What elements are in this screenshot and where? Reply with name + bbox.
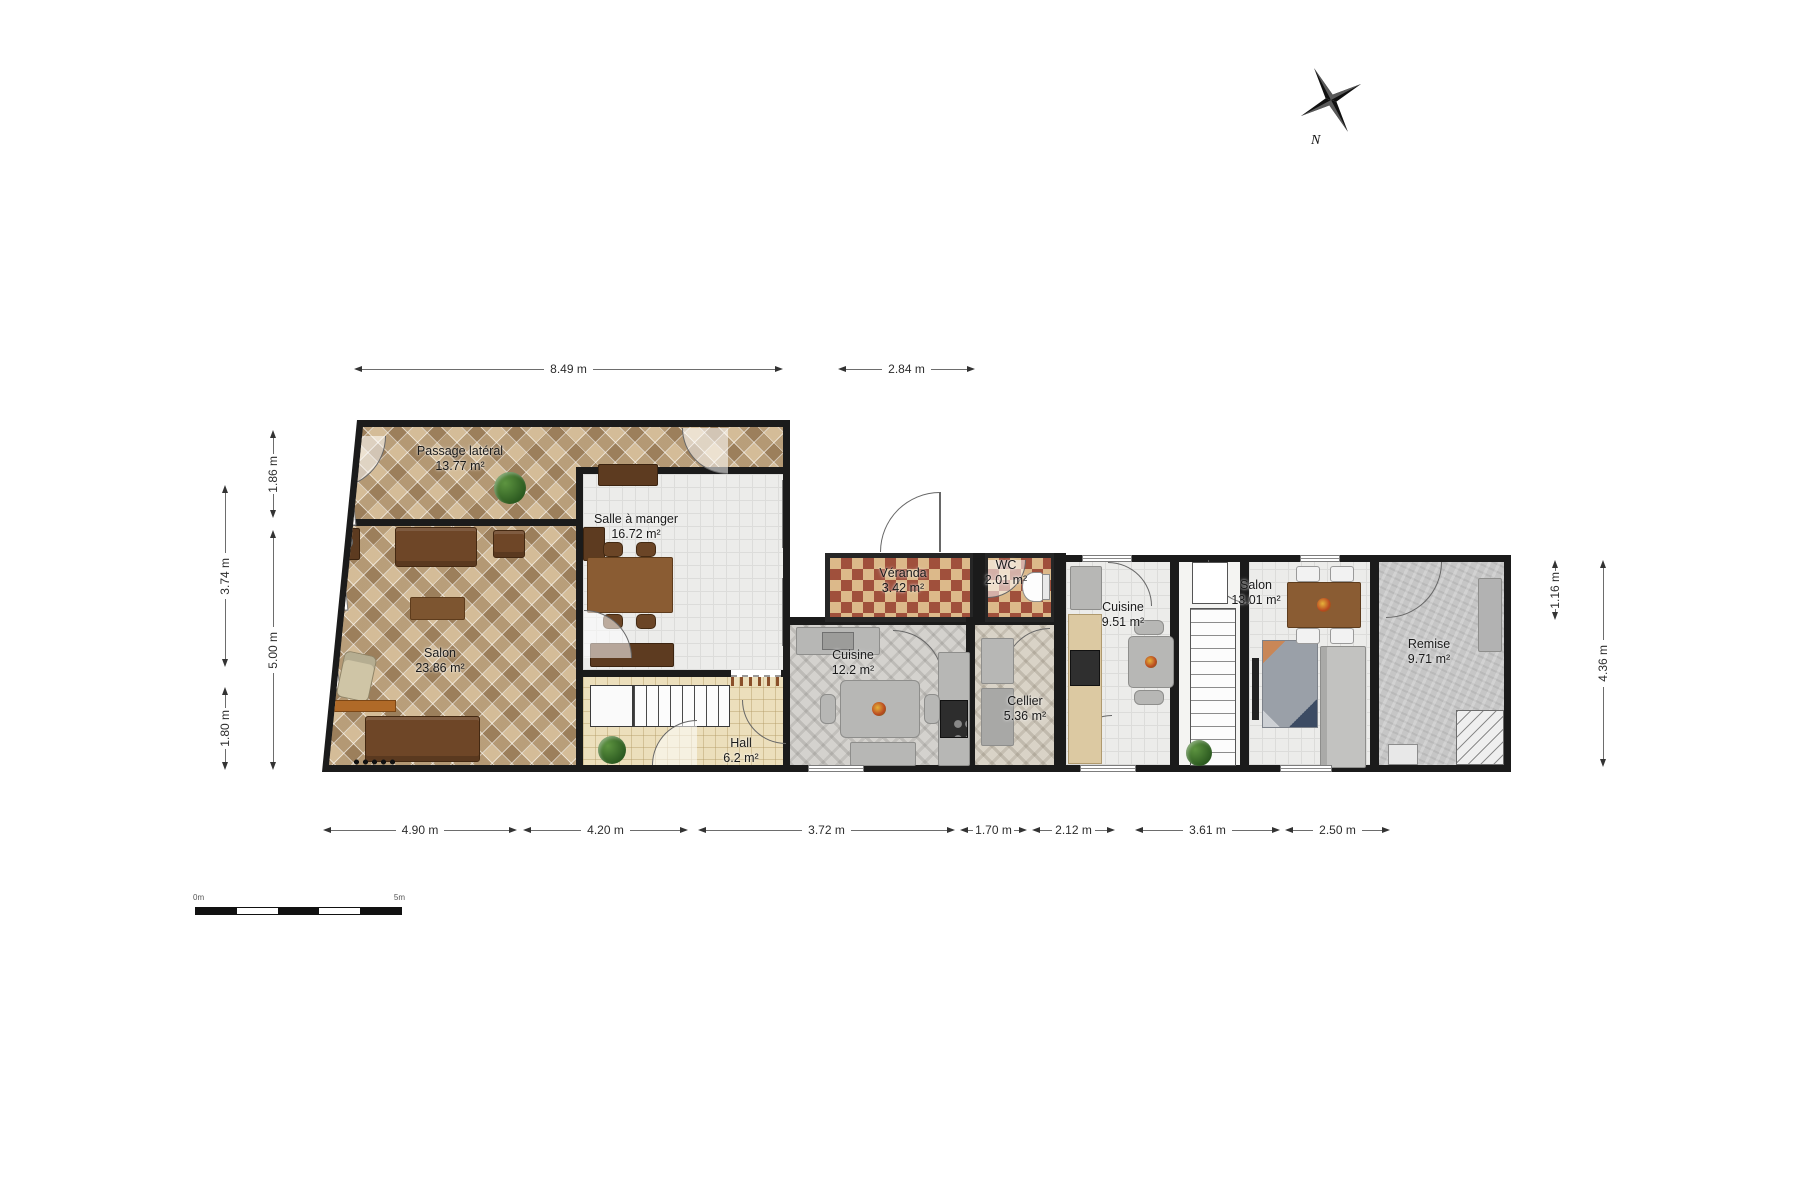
dining-chair-white	[1296, 628, 1320, 644]
window-north-salon-right	[1300, 555, 1340, 562]
wall-cellier-cuisine-right	[1054, 553, 1066, 772]
window-east-dining-2	[782, 578, 790, 646]
room-label-cuisine-left: Cuisine 12.2 m²	[793, 648, 913, 678]
room-label-cellier: Cellier 5.36 m²	[965, 694, 1085, 724]
room-area: 5.36 m²	[965, 709, 1085, 724]
plant-corridor	[1186, 740, 1212, 766]
room-area: 12.2 m²	[793, 663, 913, 678]
room-label-salon-right: Salon 13.01 m²	[1196, 578, 1316, 608]
sofa-small	[365, 716, 480, 762]
side-table	[332, 528, 360, 560]
dining-chair-white	[1330, 628, 1354, 644]
room-name: Remise	[1369, 637, 1489, 652]
door-arc-veranda	[880, 492, 940, 552]
dimension-bottom-361: 3.61 m	[1135, 824, 1280, 836]
room-label-salle-a-manger: Salle à manger 16.72 m²	[566, 512, 706, 542]
room-label-salon-left: Salon 23.86 m²	[385, 646, 495, 676]
door-leaf-veranda	[939, 492, 941, 552]
dimension-value: 1.80 m	[219, 708, 231, 749]
tv-screen	[1252, 658, 1259, 720]
stair-landing	[590, 685, 633, 727]
cellier-appliance-1	[981, 638, 1014, 684]
plant-dining	[494, 472, 526, 504]
remise-box	[1388, 744, 1418, 765]
room-name: Passage latéral	[385, 444, 535, 459]
coffee-table	[410, 597, 465, 620]
window-south-salon-2	[497, 765, 533, 772]
kitchen-chair	[820, 694, 836, 724]
wall-passage-salon	[322, 519, 583, 526]
fruit-bowl	[1317, 598, 1331, 612]
dimension-bottom-212: 2.12 m	[1032, 824, 1115, 836]
room-area: 9.51 m²	[1063, 615, 1183, 630]
room-name: Cuisine	[1063, 600, 1183, 615]
window-south-salon-1	[417, 765, 467, 772]
wall-shelf	[308, 700, 396, 712]
room-label-veranda: Véranda 3.42 m²	[845, 566, 961, 596]
sofa-gray	[1320, 646, 1366, 768]
window-west-1	[344, 478, 357, 527]
sideboard-top	[598, 464, 658, 486]
dimension-left-374: 3.74 m	[218, 485, 232, 667]
room-area: 13.01 m²	[1196, 593, 1316, 608]
scale-bar-segments	[195, 907, 402, 915]
dimension-value: 4.90 m	[396, 824, 445, 836]
oven	[1070, 650, 1100, 686]
fruit-bowl	[1145, 656, 1157, 668]
dimension-value: 3.72 m	[802, 824, 851, 836]
dimension-bottom-490: 4.90 m	[323, 824, 517, 836]
room-name: WC	[966, 558, 1046, 573]
dining-chair-white	[1330, 566, 1354, 582]
fruit-bowl	[872, 702, 886, 716]
dimension-bottom-250: 2.50 m	[1285, 824, 1390, 836]
room-area: 3.42 m²	[845, 581, 961, 596]
dimension-value: 1.16 m	[1549, 571, 1561, 610]
room-name: Cellier	[965, 694, 1085, 709]
lamp	[339, 535, 353, 549]
rug	[1262, 640, 1318, 728]
scale-bar: 0m 5m	[193, 893, 405, 919]
window-south-cuisine-right	[1080, 765, 1136, 772]
dimension-left-186: 1.86 m	[266, 430, 280, 518]
window-east-dining-1	[782, 480, 790, 548]
dimension-value: 1.86 m	[267, 454, 279, 495]
dimension-bottom-170: 1.70 m	[960, 824, 1027, 836]
dimension-top-849: 8.49 m	[354, 363, 783, 375]
dimension-left-500: 5.00 m	[266, 530, 280, 770]
dimension-right-436: 4.36 m	[1596, 560, 1610, 767]
kitchen-appliance	[850, 742, 916, 766]
room-name: Salle à manger	[566, 512, 706, 527]
dimension-value: 8.49 m	[544, 363, 593, 375]
dimension-value: 3.74 m	[219, 553, 231, 600]
dimension-top-284: 2.84 m	[838, 363, 975, 375]
armchair	[493, 530, 525, 558]
room-area: 23.86 m²	[385, 661, 495, 676]
room-label-wc: WC 2.01 m²	[966, 558, 1046, 588]
room-name: Cuisine	[793, 648, 913, 663]
room-area: 16.72 m²	[566, 527, 706, 542]
staircase-hall	[633, 685, 730, 727]
dimension-value: 4.20 m	[581, 824, 630, 836]
kitchen-chair	[1134, 690, 1164, 705]
opening-dining-hall	[731, 670, 781, 677]
scale-end-label: 5m	[394, 893, 405, 902]
dimension-right-116: 1.16 m	[1548, 560, 1562, 620]
threshold-hatch	[731, 677, 781, 686]
dimension-value: 2.12 m	[1052, 824, 1095, 836]
room-name: Salon	[385, 646, 495, 661]
room-area: 9.71 m²	[1369, 652, 1489, 667]
dimension-value: 3.61 m	[1183, 824, 1232, 836]
dimension-value: 2.50 m	[1313, 824, 1362, 836]
dining-table	[587, 557, 673, 613]
counter-beige	[1068, 614, 1102, 764]
dimension-value: 5.00 m	[267, 627, 279, 674]
dimension-value: 1.70 m	[973, 824, 1014, 836]
compass-rose: N	[1295, 60, 1367, 148]
room-area: 13.77 m²	[385, 459, 535, 474]
window-north-passage	[562, 420, 640, 427]
room-label-cuisine-right: Cuisine 9.51 m²	[1063, 600, 1183, 630]
dining-chair	[603, 542, 623, 557]
plant-hall	[598, 736, 626, 764]
window-south-salon-right	[1280, 765, 1332, 772]
room-label-remise: Remise 9.71 m²	[1369, 637, 1489, 667]
room-area: 6.2 m²	[681, 751, 801, 766]
room-area: 2.01 m²	[966, 573, 1046, 588]
dimension-value: 4.36 m	[1597, 640, 1609, 687]
sofa-large	[395, 527, 477, 567]
window-south-cuisine-left	[808, 765, 864, 772]
compass-north-label: N	[1310, 133, 1321, 148]
room-name: Véranda	[845, 566, 961, 581]
dining-chair	[636, 542, 656, 557]
dimension-bottom-420: 4.20 m	[523, 824, 688, 836]
room-label-passage-lateral: Passage latéral 13.77 m²	[385, 444, 535, 474]
kitchen-chair	[924, 694, 940, 724]
room-name: Salon	[1196, 578, 1316, 593]
scale-start-label: 0m	[193, 893, 204, 902]
compass-star-icon: N	[1295, 60, 1367, 148]
floor-plan-canvas: Passage latéral 13.77 m² Salle à manger …	[0, 0, 1806, 1200]
dining-chair	[636, 614, 656, 629]
window-north-cuisine-right	[1082, 555, 1132, 562]
staircase-remise	[1456, 710, 1504, 765]
dimension-left-180: 1.80 m	[218, 687, 232, 770]
window-west-2	[336, 563, 349, 612]
room-label-hall: Hall 6.2 m²	[681, 736, 801, 766]
dimension-value: 2.84 m	[882, 363, 931, 375]
decor-dots	[352, 758, 398, 766]
stove	[940, 700, 968, 738]
dimension-bottom-372: 3.72 m	[698, 824, 955, 836]
room-name: Hall	[681, 736, 801, 751]
